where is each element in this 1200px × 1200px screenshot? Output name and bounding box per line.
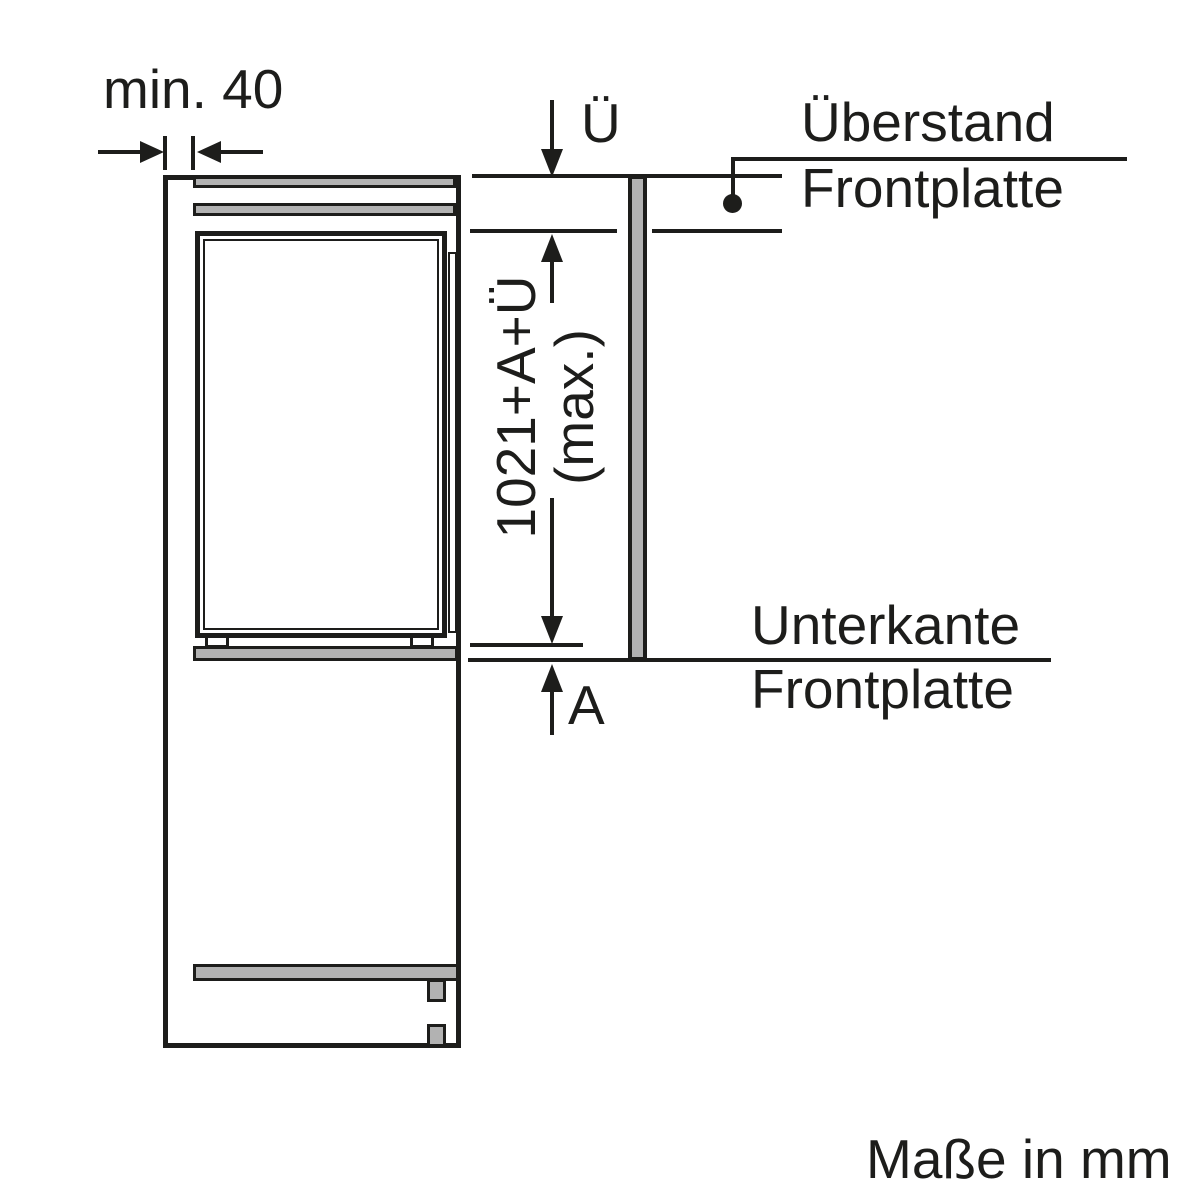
installation-dimension-diagram: min. 40 Ü 1021+A+Ü (max.) A Überstand Fr… [0,0,1200,1200]
bottom-edge-callout-line2: Frontplatte [751,662,1014,717]
adjustment-symbol-label: A [568,678,605,733]
front-panel-top-line [472,174,782,178]
max-height-label: 1021+A+Ü (max.) [487,257,603,557]
arrowhead-down-icon [541,149,563,177]
min-clearance-shaft-left [98,150,140,154]
door-bottom-line-short [470,643,583,647]
overhang-callout-line1: Überstand [801,95,1055,150]
overhang-callout-line-vertical [731,157,735,199]
bottom-edge-callout-line1: Unterkante [751,598,1020,653]
min-clearance-tick-right [191,136,195,170]
compartment-shelf [193,646,458,661]
adjustment-dim-shaft [550,690,554,735]
niche-top-panel [193,176,456,188]
arrowhead-left-icon [197,141,221,163]
units-note: Maße in mm [866,1132,1172,1187]
cabinet-bottom-line [163,1043,461,1048]
min-clearance-tick-left [163,136,167,170]
door-top-line-left [470,229,617,233]
plinth-block-lower [427,1024,446,1047]
plinth-panel [193,964,459,981]
max-height-label-line2: (max.) [545,329,603,485]
max-height-label-line1: 1021+A+Ü [487,276,545,539]
arrowhead-right-icon [140,141,164,163]
arrowhead-down-icon [541,616,563,644]
overhang-callout-dot [723,194,742,213]
min-clearance-shaft-right [221,150,263,154]
door-top-line-right [652,229,782,233]
height-dim-shaft-lower [550,498,554,620]
appliance-door-inner-line [203,239,439,630]
overhang-callout-line2: Frontplatte [801,161,1064,216]
plinth-block-upper [427,979,446,1002]
door-side-strip [448,252,457,633]
overhang-symbol-label: Ü [581,96,621,151]
niche-top-rail [193,203,456,216]
cabinet-left-wall [163,175,168,1048]
front-panel-bar [628,175,647,661]
arrowhead-up-icon [541,664,563,692]
overhang-dim-shaft [550,100,554,152]
min-clearance-label: min. 40 [103,62,283,117]
